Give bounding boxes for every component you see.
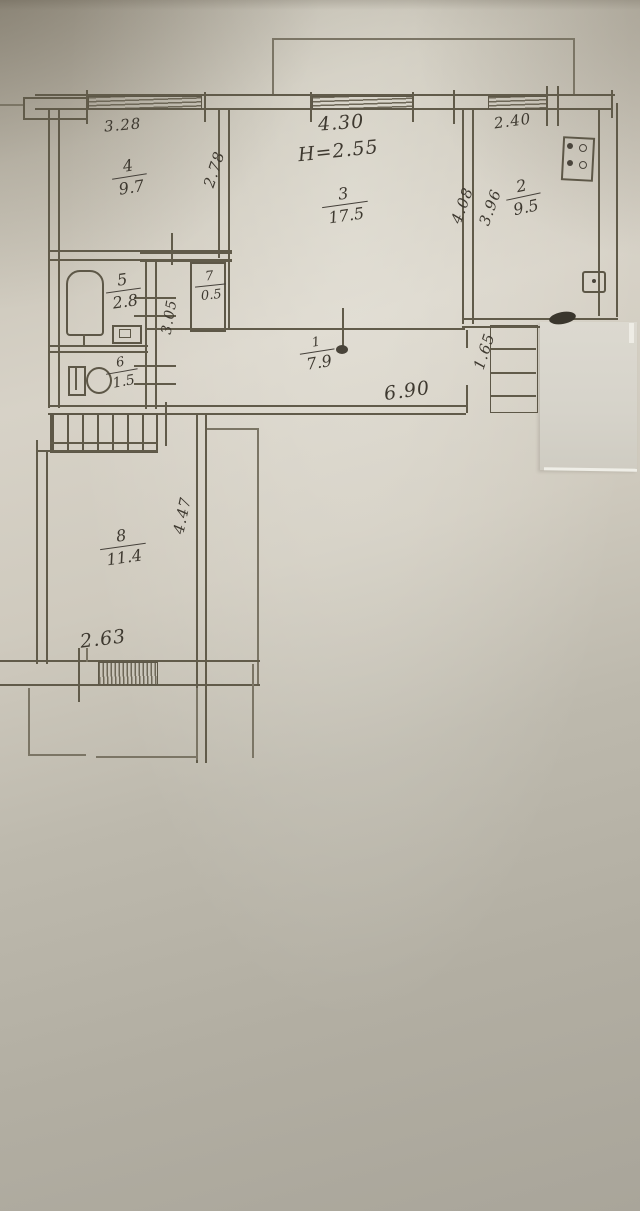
bedroom2-west-wall-inner — [46, 450, 48, 664]
balcony-left-line — [272, 38, 274, 96]
balcony2-bottom-a — [28, 754, 86, 756]
dim-hall-length: 6.90 — [383, 379, 432, 404]
room-number: 6 — [115, 356, 126, 372]
room-number: 2 — [515, 177, 529, 197]
bathtub-icon — [66, 270, 104, 336]
hall-upper-wall-a — [140, 252, 232, 254]
west-wall-outer — [48, 108, 50, 408]
kitchen-bottom-wall-a — [462, 318, 618, 320]
paper-patch — [540, 322, 637, 470]
dim-kitchen-depth: 3.96 — [477, 187, 504, 227]
top-wall-right-cap — [611, 90, 613, 118]
tick — [204, 92, 206, 122]
balcony2-right — [196, 688, 198, 760]
room-area: 9.5 — [506, 192, 545, 219]
room-label-living: 3 17.5 — [320, 183, 370, 227]
wall-living-kitchen-b — [472, 110, 474, 324]
top-wall-left-cap-bottom — [23, 118, 88, 120]
bathtub-drain-tick — [83, 334, 85, 346]
ceiling-height-label: H=2.55 — [297, 138, 379, 165]
room-number: 1 — [311, 336, 322, 352]
room-area: 0.5 — [195, 283, 227, 303]
window-kitchen — [488, 96, 548, 109]
wall-bath-east-a — [145, 259, 147, 409]
wall-bedroom1-living-b — [228, 110, 230, 330]
window-living — [312, 96, 414, 109]
entry-wall-lower — [466, 385, 468, 413]
balcony-right-line — [573, 38, 575, 96]
patch-white-edge-bottom — [544, 467, 637, 472]
room-area: 7.9 — [300, 348, 338, 373]
room-area: 2.8 — [106, 288, 144, 313]
room-label-hall: 1 7.9 — [297, 333, 337, 373]
balcony2-bottom-b — [96, 756, 198, 758]
kitchen-outer-east-wall — [616, 103, 618, 317]
west-wall-inner — [58, 108, 60, 408]
tick — [86, 90, 88, 124]
wall-bath-east-b — [155, 259, 157, 409]
tick — [546, 86, 548, 126]
room-number: 3 — [337, 185, 350, 204]
toilet-tank-icon — [68, 366, 86, 396]
room-label-closet: 7 0.5 — [193, 268, 227, 303]
room-number: 7 — [205, 270, 215, 286]
south-east-corner — [252, 664, 254, 758]
hall-upper-wall-b — [140, 260, 232, 262]
room-number: 4 — [122, 157, 135, 176]
room-area: 9.7 — [112, 173, 150, 198]
dim-bedroom1-width: 3.28 — [103, 116, 142, 134]
tick — [453, 90, 455, 124]
room-area: 17.5 — [322, 201, 370, 227]
tick — [557, 86, 559, 126]
stove-burner — [567, 143, 573, 149]
tick-bedroom2-width — [78, 648, 80, 702]
toilet-tank-line — [75, 368, 77, 390]
stove-icon — [561, 136, 595, 182]
window-bedroom1 — [88, 96, 202, 109]
tick — [412, 92, 414, 122]
hall-bottom-wall-a — [48, 405, 466, 407]
stove-burner — [579, 161, 587, 169]
room-label-bath: 5 2.8 — [104, 270, 144, 313]
ink-blot-small — [336, 345, 348, 354]
dim-bedroom2-width: 2.63 — [79, 627, 127, 652]
window-bedroom2 — [98, 662, 158, 685]
top-wall-left-cap-side — [23, 97, 25, 120]
dim-bedroom1-depth: 2.78 — [202, 149, 228, 189]
step-line — [491, 395, 536, 397]
room-number: 8 — [115, 527, 128, 546]
entry-wall — [466, 330, 468, 348]
dim-kitchen-width: 2.40 — [493, 111, 532, 131]
stove-burner — [579, 144, 587, 152]
sink-inner — [119, 329, 131, 338]
room-number: 5 — [116, 271, 129, 290]
dim-bedroom2-depth: 4.47 — [171, 496, 193, 536]
balcony-top-line — [272, 38, 575, 40]
bedroom2-east-wall-b — [205, 413, 207, 763]
stairwell-outline-east — [257, 428, 259, 686]
patch-white-edge-top — [629, 323, 634, 343]
room-area: 11.4 — [100, 543, 148, 569]
hall-top-wall — [145, 328, 465, 330]
room-label-kitchen: 2 9.5 — [502, 175, 545, 220]
top-wall-left-stub — [0, 104, 23, 106]
door-tick-wc-a — [134, 365, 176, 367]
door-tick-bedroom2 — [165, 402, 167, 446]
tick — [310, 92, 312, 122]
room-area: 1.5 — [106, 368, 141, 391]
room-label-bedroom2: 8 11.4 — [98, 525, 148, 569]
bedroom2-top-wall — [36, 450, 158, 452]
wardrobe-rail — [50, 442, 158, 444]
bedroom2-west-wall-outer — [36, 440, 38, 664]
stove-burner — [567, 160, 573, 166]
room-label-wc: 6 1.5 — [103, 353, 141, 391]
wardrobe-hatch — [50, 413, 158, 453]
step-line — [491, 372, 536, 374]
scanned-floor-plan-photo: 3.28 2.78 4.30 H=2.55 4.08 2.40 3.96 3.0… — [0, 0, 640, 1211]
wall-bath-wc-a — [48, 345, 148, 347]
balcony2-left — [28, 688, 30, 756]
dim-living-width: 4.30 — [317, 112, 365, 134]
kitchen-sink-drain — [592, 279, 596, 283]
step-line — [491, 348, 536, 350]
stairwell-outline-top — [207, 428, 259, 430]
top-wall-left-cap-top — [23, 97, 88, 99]
room-label-bedroom1: 4 9.7 — [109, 155, 150, 198]
